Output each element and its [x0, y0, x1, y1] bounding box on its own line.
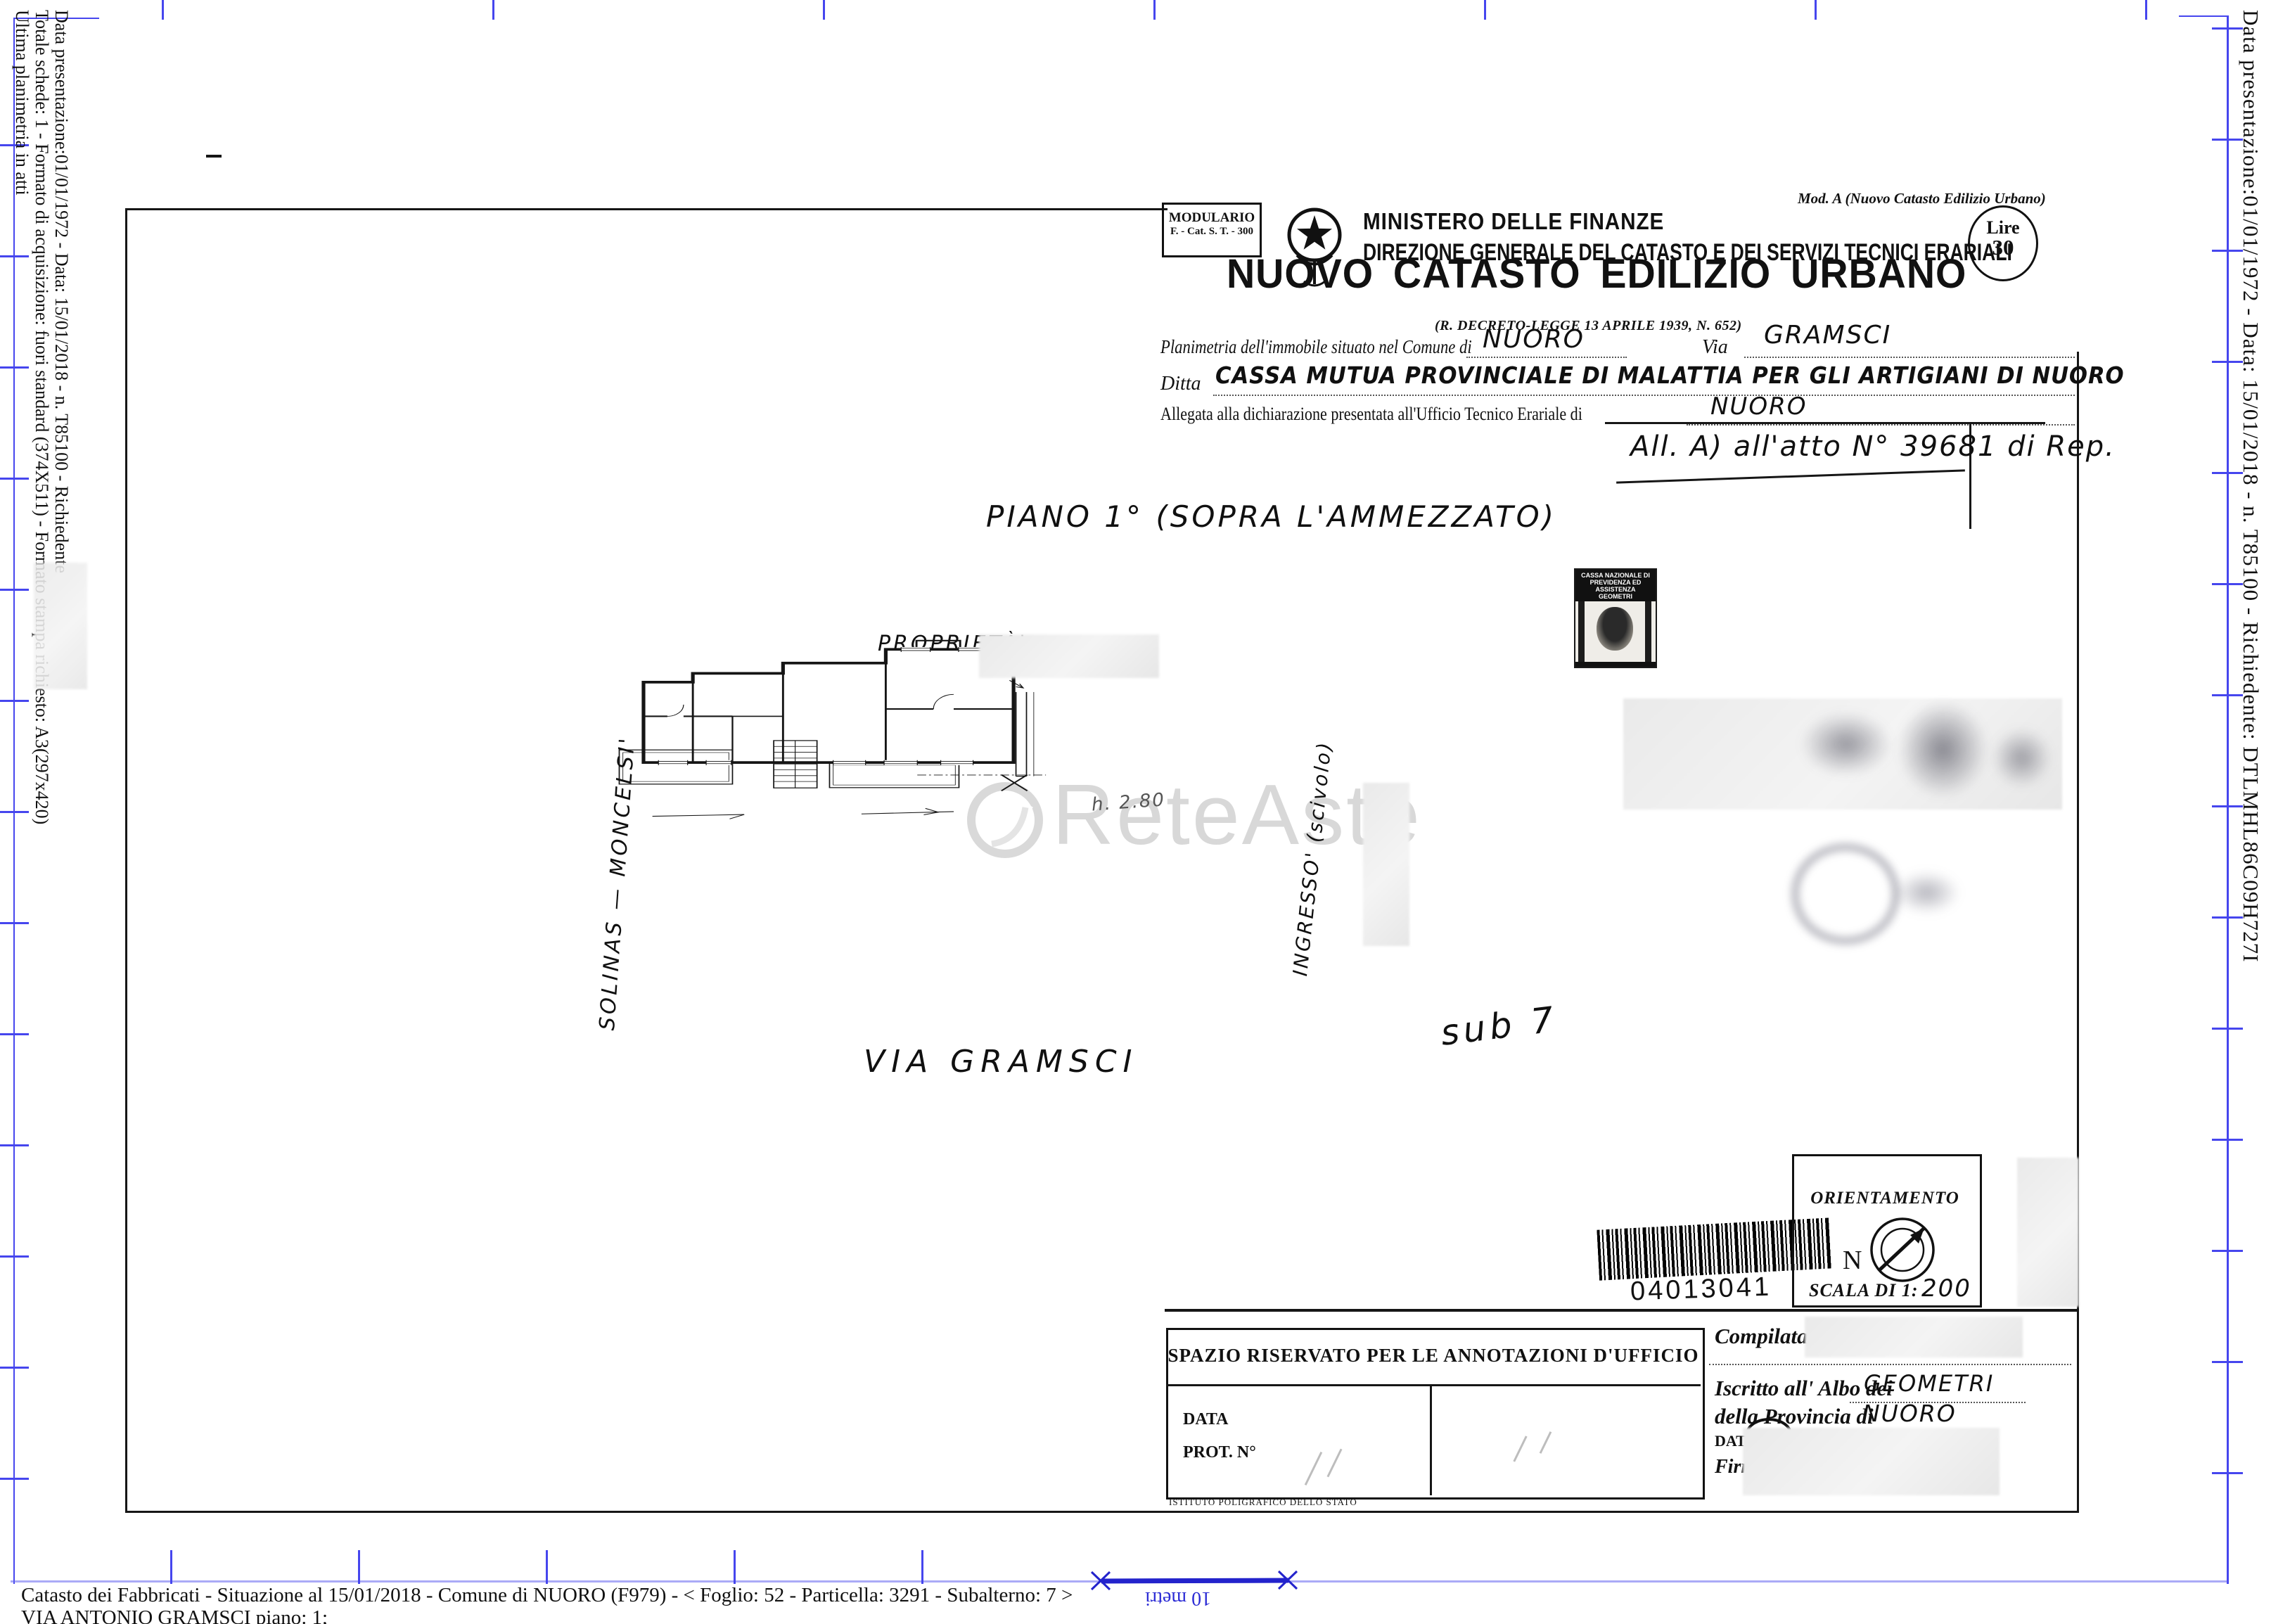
edge-note-left-1: Data presentazione:01/01/1972 - Data: 15… — [51, 10, 72, 1613]
compilata-dotted-line — [1709, 1363, 2071, 1365]
stamp-portrait — [1575, 601, 1656, 662]
scala-label: SCALA DI 1: — [1809, 1280, 1919, 1301]
redaction-smudge-4 — [1893, 871, 1960, 914]
street-label: VIA GRAMSCI — [864, 1044, 1139, 1080]
ditta-dotted-line — [1213, 394, 2075, 396]
crop-tick — [1815, 0, 1817, 20]
ditta-label: Ditta — [1160, 373, 1201, 395]
scanned-cadastral-page: 10 metri Data presentazione:01/01/1972 -… — [0, 0, 2271, 1624]
allegata-label: Allegata alla dichiarazione presentata a… — [1160, 404, 1657, 425]
mod-a-note: Mod. A (Nuovo Catasto Edilizio Urbano) — [1798, 190, 2046, 207]
atto-underline — [1616, 469, 1965, 483]
planimetria-label-text: Planimetria dell'immobile situato nel Co… — [1160, 336, 1472, 358]
redaction-data-firma — [1743, 1428, 2000, 1495]
scala-value: 200 — [1921, 1274, 1971, 1303]
barcode-number: 04013041 — [1630, 1272, 1772, 1307]
redaction-compilata — [1805, 1317, 2023, 1357]
scale-bar-label: 10 metri — [1145, 1587, 1211, 1609]
piano-note: PIANO 1° (SOPRA L'AMMEZZATO) — [986, 499, 1556, 534]
annotazioni-divider — [1430, 1384, 1432, 1495]
crop-tick — [1153, 0, 1156, 20]
edge-note-right: Data presentazione:01/01/1972 - Data: 15… — [2238, 10, 2263, 1613]
sub-note: sub 7 — [1438, 999, 1560, 1054]
redaction-corridor-strip — [1363, 783, 1409, 946]
stamp-line3: GEOMETRI — [1576, 593, 1655, 600]
crop-tick — [734, 1550, 736, 1584]
footer-separator — [1165, 1309, 2078, 1312]
redaction-smudge-3 — [1992, 728, 2052, 788]
via-value: GRAMSCI — [1764, 321, 1891, 350]
via-label: Via — [1702, 336, 1728, 359]
ditta-value-text: CASSA MUTUA PROVINCIALE DI MALATTIA PER … — [1215, 362, 2125, 389]
crop-tick — [162, 0, 164, 20]
sheet-border-top — [125, 208, 1168, 210]
crop-corner-top-right — [2179, 15, 2228, 17]
crop-tick — [2145, 0, 2147, 20]
via-dotted-line — [1744, 356, 2075, 358]
document-title: NUOVO CATASTO EDILIZIO URBANO — [1227, 250, 1966, 298]
lire-circle: Lire 30 — [1968, 205, 2038, 281]
crop-tick — [170, 1550, 172, 1584]
crop-tick — [823, 0, 825, 20]
edge-note-left-3: Ultima planimetria in atti — [11, 10, 32, 1613]
plan-windows — [658, 647, 988, 765]
annotazioni-data-label: DATA — [1183, 1410, 1228, 1429]
modulario-line2: F. - Cat. S. T. - 300 — [1164, 226, 1260, 238]
sheet-border-right — [2077, 352, 2079, 1512]
annotazioni-header-rule — [1166, 1384, 1701, 1386]
atto-note: All. A) all'atto N° 39681 di Rep. — [1630, 430, 2116, 463]
crop-tick — [1484, 0, 1486, 20]
ministero-heading: MINISTERO DELLE FINANZE — [1363, 208, 1664, 235]
modulario-box: MODULARIO F. - Cat. S. T. - 300 — [1162, 203, 1262, 257]
provincia-value: NUORO — [1862, 1400, 1957, 1427]
allegata-label-text: Allegata alla dichiarazione presentata a… — [1160, 404, 1582, 425]
caption-line-1: Catasto dei Fabbricati - Situazione al 1… — [21, 1584, 1073, 1607]
redaction-left-edge — [34, 563, 87, 689]
provincia-label: della Provincia di — [1715, 1404, 1874, 1429]
redaction-smudge-2 — [1899, 702, 1987, 797]
planimetria-label: Planimetria dell'immobile situato nel Co… — [1160, 336, 1531, 358]
caption-line-2: VIA ANTONIO GRAMSCI piano: 1; — [21, 1606, 328, 1624]
comune-dotted-line — [1466, 356, 1627, 358]
lire-value: 30 — [1970, 238, 2036, 257]
decreto-subtitle: (R. DECRETO-LEGGE 13 APRILE 1939, N. 652… — [1435, 318, 1742, 334]
crop-tick — [921, 1550, 923, 1584]
allegata-value: NUORO — [1710, 392, 1807, 421]
crop-tick — [492, 0, 494, 20]
north-label: N — [1843, 1245, 1862, 1276]
revenue-stamp: CASSA NAZIONALE DI PREVIDENZA ED ASSISTE… — [1574, 568, 1657, 668]
annotazioni-title: SPAZIO RISERVATO PER LE ANNOTAZIONI D'UF… — [1166, 1345, 1701, 1367]
stamp-line2: PREVIDENZA ED ASSISTENZA — [1576, 579, 1655, 593]
ditta-value: CASSA MUTUA PROVINCIALE DI MALATTIA PER … — [1215, 362, 2193, 389]
modulario-line1: MODULARIO — [1164, 210, 1260, 226]
crop-tick — [358, 1550, 360, 1584]
redaction-smudge-1 — [1800, 712, 1892, 776]
atto-box-top — [1605, 422, 2045, 424]
emblem-star — [1297, 215, 1332, 250]
iscritto-value: GEOMETRI — [1864, 1370, 1994, 1397]
comune-value: NUORO — [1483, 325, 1585, 354]
stamp-line1: CASSA NAZIONALE DI — [1576, 572, 1655, 579]
crop-tick — [546, 1550, 548, 1584]
redaction-right-edge-box — [2017, 1158, 2079, 1307]
stray-dash — [206, 155, 222, 158]
sheet-border-bottom — [125, 1511, 2079, 1513]
redaction-proprieta — [979, 634, 1159, 678]
orientamento-title: ORIENTAMENTO — [1792, 1189, 1978, 1208]
edge-note-left-2: Totale schede: 1 - Formato di acquisizio… — [31, 10, 52, 1613]
poligrafico-note: ISTITUTO POLIGRAFICO DELLO STATO — [1169, 1497, 1357, 1508]
sheet-border-left — [125, 208, 127, 1512]
annotazioni-prot-label: PROT. N° — [1183, 1443, 1256, 1462]
redaction-round-stamp — [1792, 844, 1899, 944]
